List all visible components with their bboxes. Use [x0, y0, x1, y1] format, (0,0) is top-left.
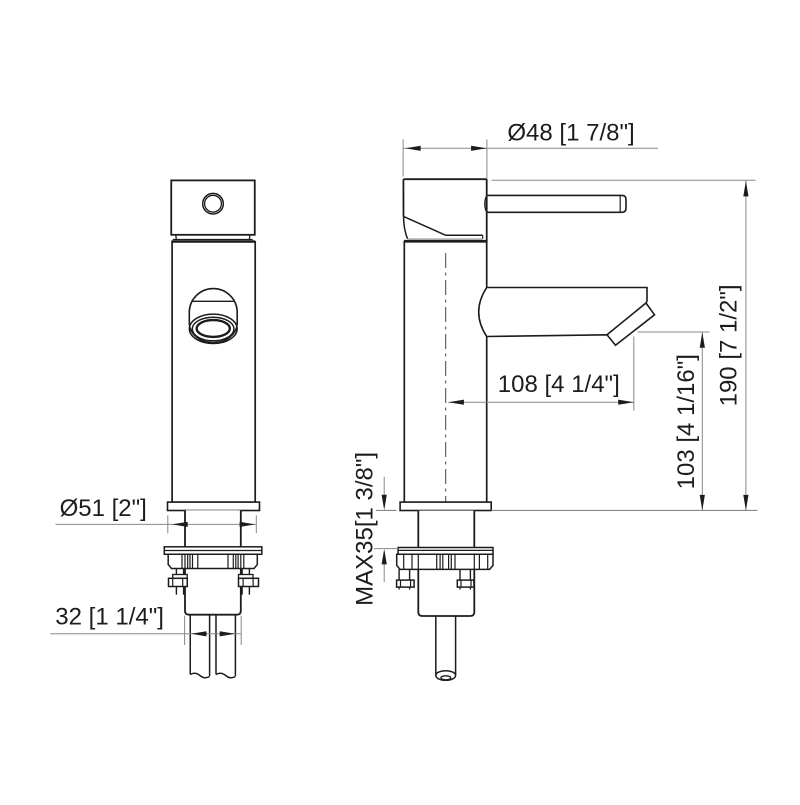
svg-text:32 [1 1/4"]: 32 [1 1/4"] [55, 603, 164, 630]
svg-text:108 [4 1/4"]: 108 [4 1/4"] [498, 371, 620, 398]
svg-text:190 [7 1/2"]: 190 [7 1/2"] [716, 284, 743, 406]
svg-text:MAX35[1 3/8"]: MAX35[1 3/8"] [352, 452, 379, 606]
svg-text:103 [4 1/16"]: 103 [4 1/16"] [673, 354, 700, 489]
svg-text:Ø48 [1 7/8"]: Ø48 [1 7/8"] [507, 120, 634, 147]
svg-text:Ø51 [2"]: Ø51 [2"] [60, 495, 147, 522]
